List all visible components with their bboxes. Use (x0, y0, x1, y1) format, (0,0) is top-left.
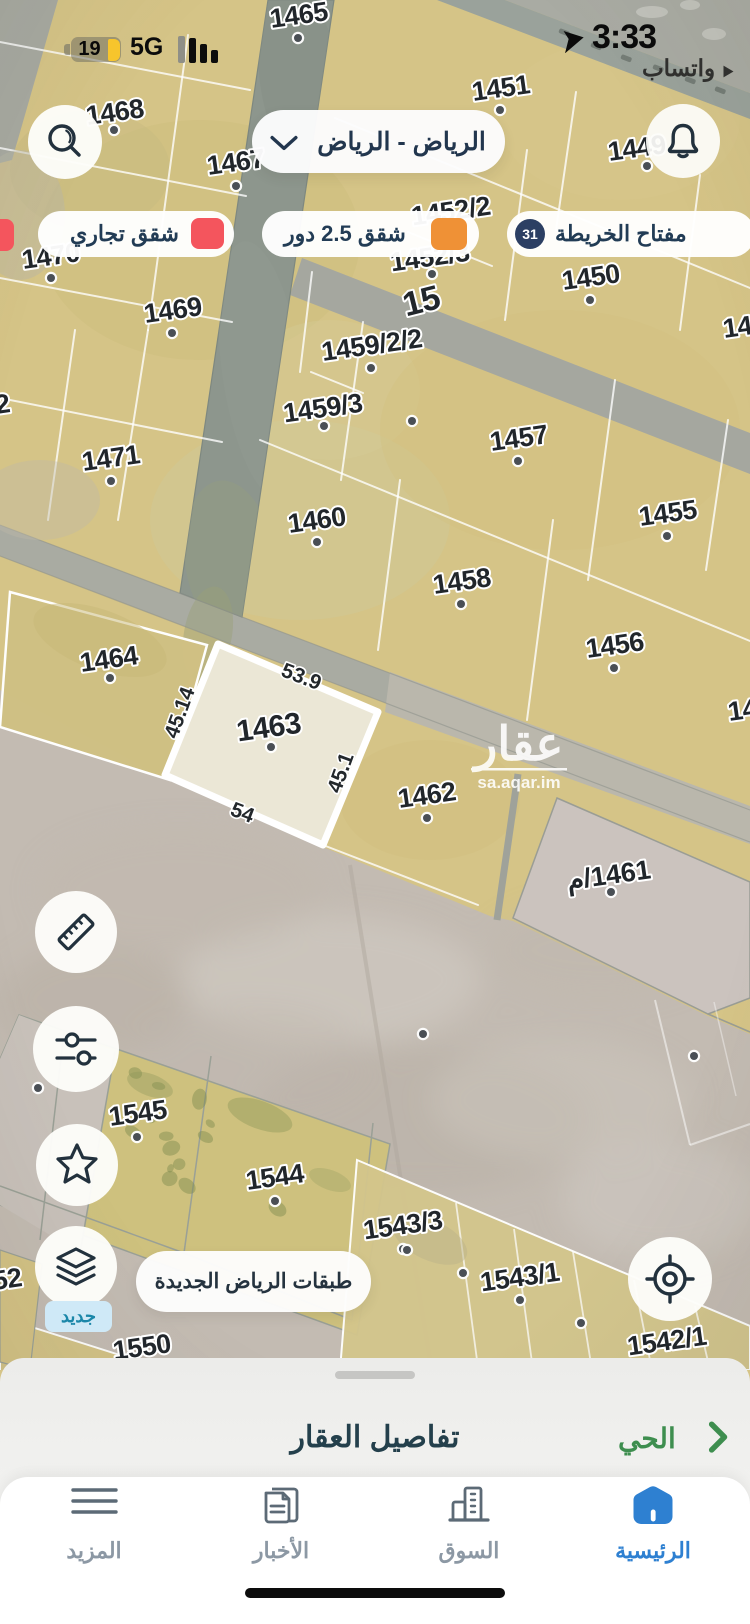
svg-text:1542/1: 1542/1 (625, 1321, 708, 1362)
svg-text:53.9: 53.9 (278, 659, 324, 695)
svg-text:1451: 1451 (470, 69, 532, 107)
svg-text:1552: 1552 (0, 1262, 24, 1300)
svg-text:1469: 1469 (142, 291, 204, 329)
svg-text:45.14: 45.14 (160, 684, 200, 742)
svg-text:1472: 1472 (0, 388, 12, 426)
svg-text:15: 15 (399, 278, 444, 324)
svg-text:sa.aqar.im: sa.aqar.im (477, 773, 560, 792)
svg-text:1458: 1458 (431, 562, 493, 600)
svg-text:1456: 1456 (584, 626, 646, 664)
svg-text:45.1: 45.1 (323, 749, 359, 796)
svg-text:1543/3: 1543/3 (361, 1205, 444, 1246)
svg-text:1459/2/2: 1459/2/2 (320, 323, 424, 367)
svg-text:عقار: عقار (472, 717, 564, 773)
svg-text:1448: 1448 (721, 306, 750, 344)
svg-text:1454: 1454 (726, 689, 750, 727)
svg-text:1545: 1545 (107, 1094, 169, 1132)
svg-text:1455: 1455 (637, 494, 699, 532)
svg-text:1450: 1450 (560, 258, 622, 296)
svg-text:1465: 1465 (268, 0, 330, 34)
svg-text:1543/1: 1543/1 (478, 1257, 561, 1298)
svg-text:1471: 1471 (80, 439, 142, 477)
svg-text:1544: 1544 (244, 1158, 306, 1196)
svg-text:1460: 1460 (286, 501, 348, 539)
svg-text:1457: 1457 (488, 419, 550, 457)
svg-text:1462: 1462 (396, 776, 458, 814)
svg-text:54: 54 (227, 798, 257, 828)
